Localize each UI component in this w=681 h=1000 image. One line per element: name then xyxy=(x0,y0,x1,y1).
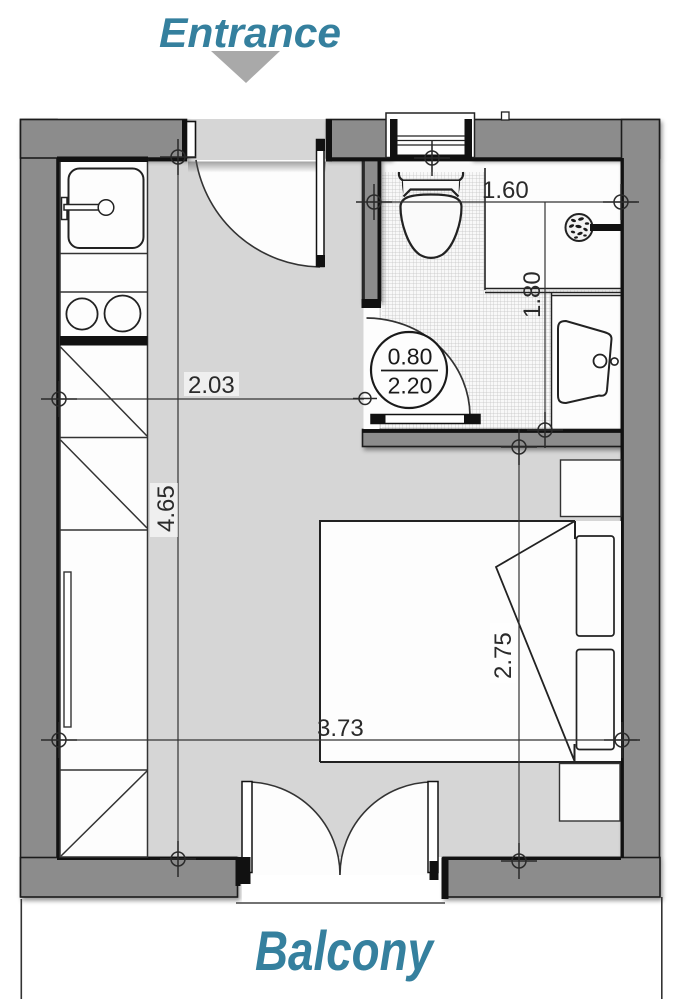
svg-text:Entrance: Entrance xyxy=(159,9,341,56)
svg-text:Balcony: Balcony xyxy=(255,919,435,982)
svg-text:2.20: 2.20 xyxy=(388,373,433,399)
svg-text:2.75: 2.75 xyxy=(490,632,517,679)
svg-text:1.80: 1.80 xyxy=(519,271,546,318)
svg-text:3.73: 3.73 xyxy=(317,715,364,742)
svg-text:0.80: 0.80 xyxy=(388,344,433,370)
svg-text:1.60: 1.60 xyxy=(482,177,529,204)
svg-text:2.03: 2.03 xyxy=(188,372,235,399)
svg-text:4.65: 4.65 xyxy=(153,485,180,532)
